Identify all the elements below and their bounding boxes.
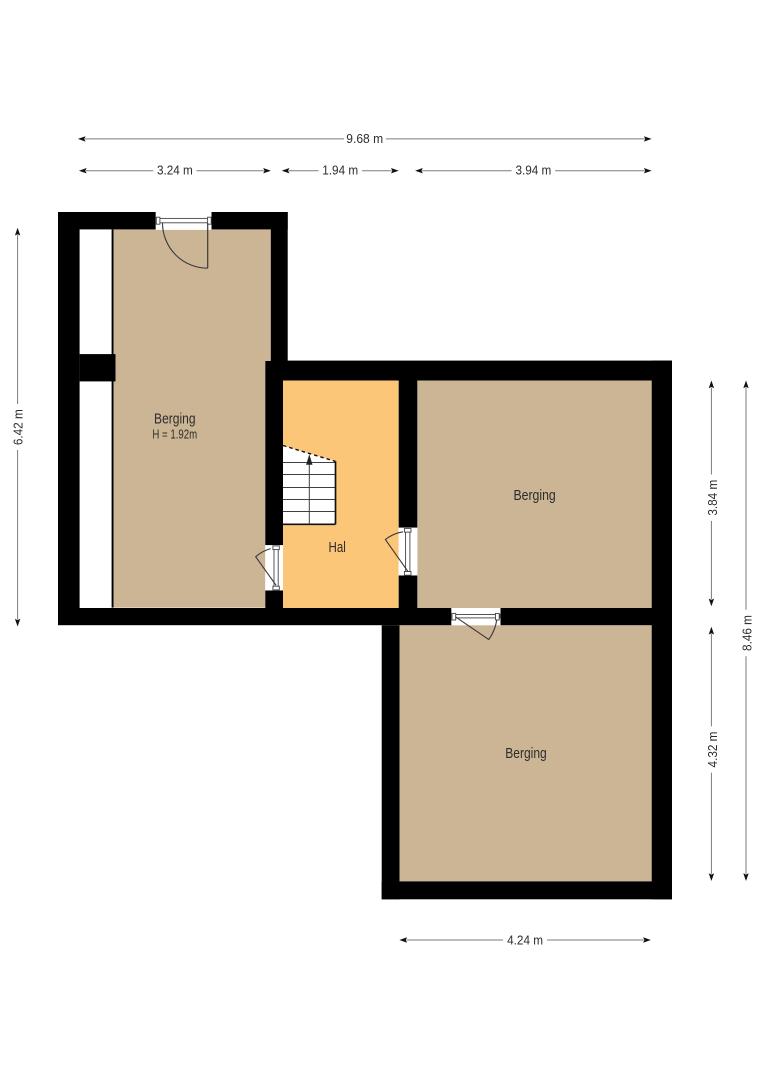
svg-text:6.42 m: 6.42 m — [10, 409, 25, 445]
svg-text:3.24 m: 3.24 m — [157, 163, 193, 178]
svg-text:Berging: Berging — [513, 488, 555, 504]
svg-text:Hal: Hal — [329, 540, 346, 556]
svg-text:4.24 m: 4.24 m — [507, 932, 543, 947]
svg-text:4.32 m: 4.32 m — [705, 732, 720, 768]
svg-text:Berging: Berging — [154, 412, 196, 428]
svg-text:3.94 m: 3.94 m — [515, 163, 551, 178]
svg-text:H = 1.92m: H = 1.92m — [152, 426, 197, 441]
svg-text:9.68 m: 9.68 m — [346, 131, 383, 146]
svg-text:Berging: Berging — [505, 746, 547, 762]
svg-text:3.84 m: 3.84 m — [705, 480, 720, 516]
svg-text:8.46 m: 8.46 m — [739, 615, 754, 651]
svg-text:1.94 m: 1.94 m — [322, 163, 358, 178]
